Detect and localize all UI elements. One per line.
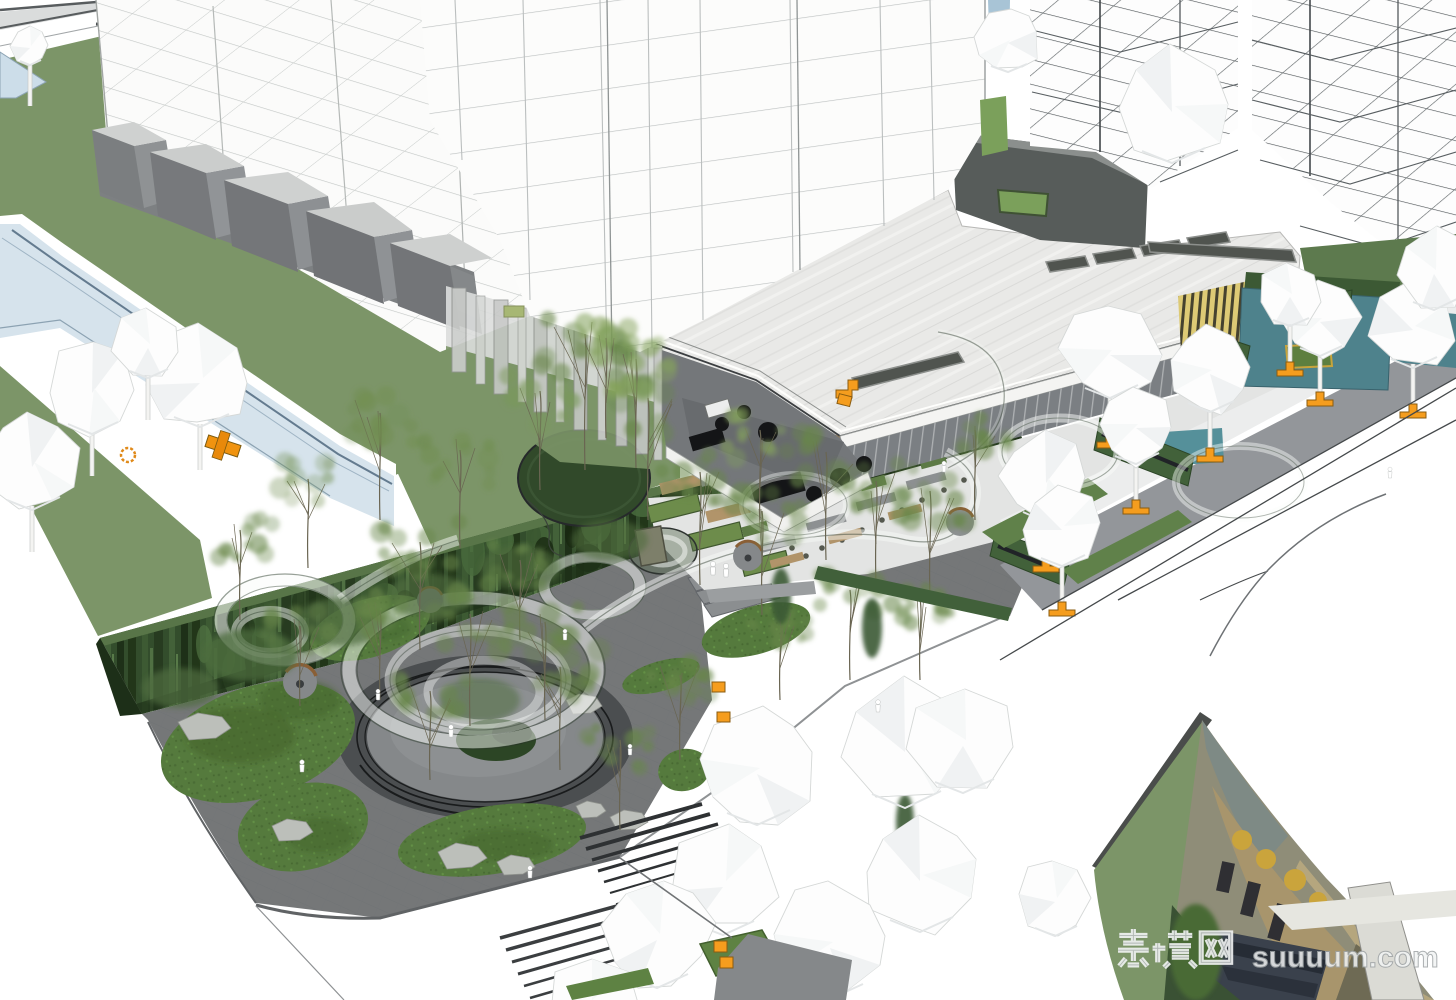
svg-text:suuuum.com: suuuum.com	[1252, 941, 1439, 974]
